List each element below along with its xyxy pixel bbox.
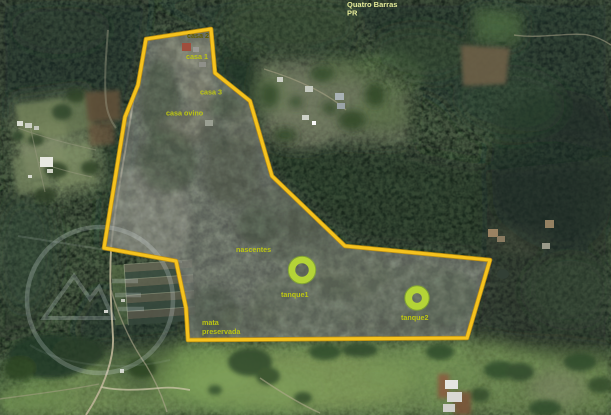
svg-text:casa 2: casa 2 — [187, 31, 209, 40]
svg-text:tanque2: tanque2 — [401, 313, 429, 322]
svg-text:casa ovino: casa ovino — [166, 109, 204, 118]
svg-text:casa 3: casa 3 — [200, 88, 222, 97]
svg-text:PR: PR — [347, 9, 358, 18]
svg-text:casa 1: casa 1 — [186, 52, 208, 61]
svg-text:Quatro Barras: Quatro Barras — [347, 0, 397, 9]
svg-text:tanque1: tanque1 — [281, 290, 309, 299]
svg-text:nascentes: nascentes — [236, 245, 271, 254]
svg-text:mata: mata — [202, 318, 220, 327]
svg-text:preservada: preservada — [202, 327, 241, 336]
